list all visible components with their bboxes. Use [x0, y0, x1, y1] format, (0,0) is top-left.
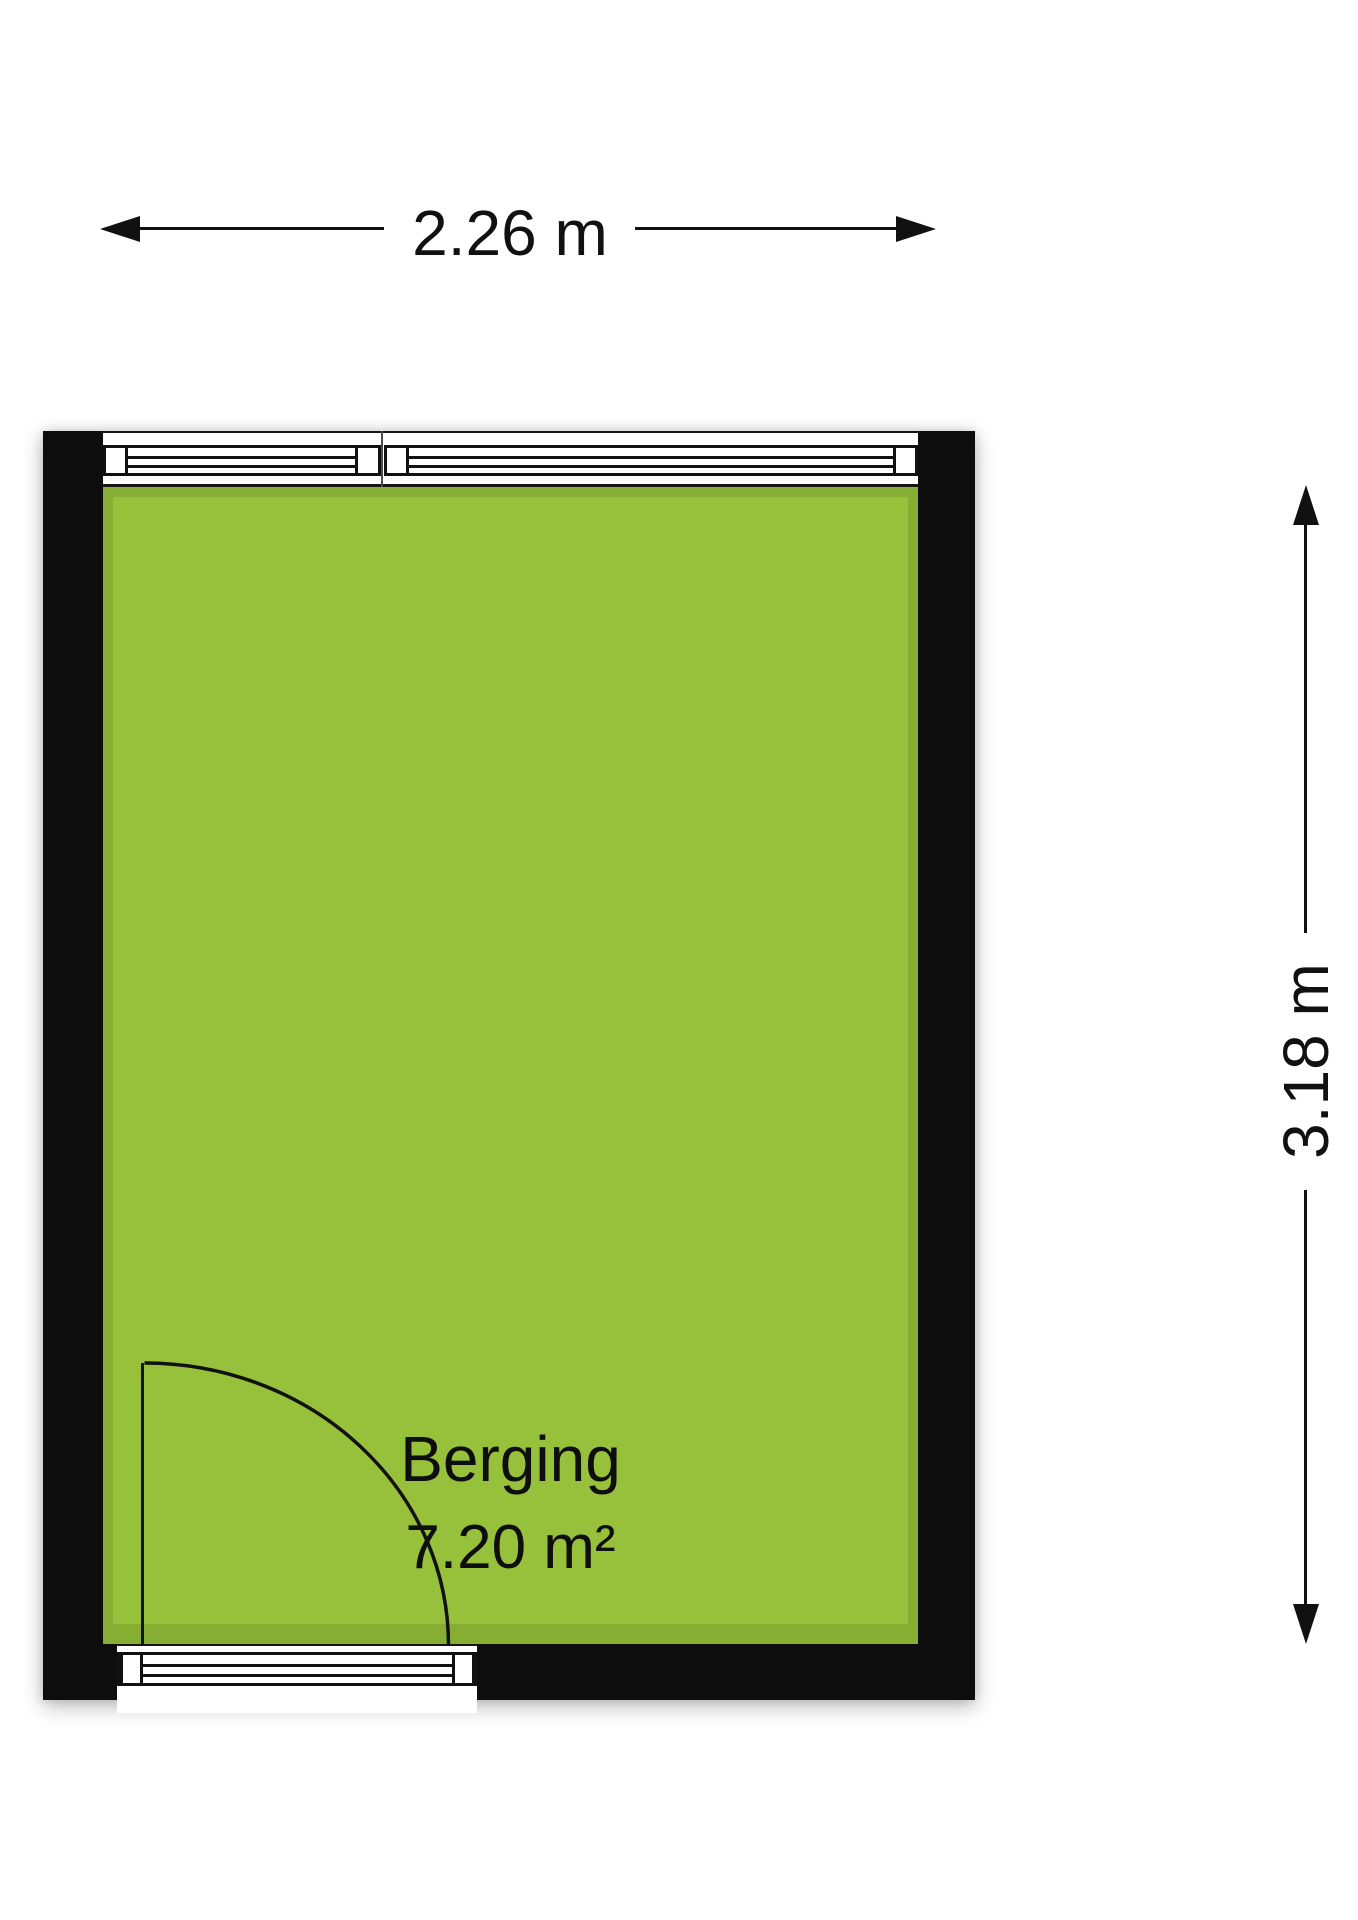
window-frame-box — [103, 445, 128, 476]
dimension-line — [1304, 523, 1307, 933]
door-opening — [117, 1644, 477, 1713]
wall-bottom-left-segment — [43, 1644, 117, 1700]
wall-left — [43, 431, 103, 1700]
wall-top-window-band — [103, 431, 918, 487]
dimension-line — [1304, 1190, 1307, 1604]
door-swing-arc — [143, 1361, 451, 1647]
window-frame-box — [893, 445, 918, 476]
wall-outer-edge — [103, 431, 918, 433]
floor-plan-page: 2.26 m 3.18 m — [0, 0, 1358, 1920]
wall-right — [918, 431, 975, 1700]
glazing-line — [387, 456, 915, 459]
glazing-line — [387, 465, 915, 468]
height-dimension-label: 3.18 m — [1269, 963, 1343, 1159]
arrowhead-right-icon — [896, 216, 936, 242]
wall-bottom-band — [43, 1644, 975, 1700]
width-dimension-label: 2.26 m — [355, 196, 665, 270]
arrowhead-down-icon — [1293, 1604, 1319, 1644]
wall-bottom-right-segment — [477, 1644, 975, 1700]
window-frame-box — [452, 1652, 475, 1686]
dimension-line — [138, 227, 384, 230]
window-divider — [381, 431, 383, 487]
glazing-line — [106, 456, 378, 459]
arrowhead-left-icon — [100, 216, 140, 242]
arrowhead-up-icon — [1293, 485, 1319, 525]
glazing-line — [106, 465, 378, 468]
floor-plan: Berging 7.20 m² — [43, 431, 975, 1700]
glazing-line — [120, 1674, 474, 1677]
window-top-right — [384, 445, 918, 476]
window-frame-box — [384, 445, 409, 476]
window-bottom — [117, 1652, 477, 1686]
window-frame-box — [120, 1652, 143, 1686]
window-top-left — [103, 445, 381, 476]
glazing-line — [120, 1664, 474, 1667]
wall-inner-edge — [117, 1644, 477, 1646]
window-frame-box — [355, 445, 381, 476]
dimension-line — [635, 227, 896, 230]
